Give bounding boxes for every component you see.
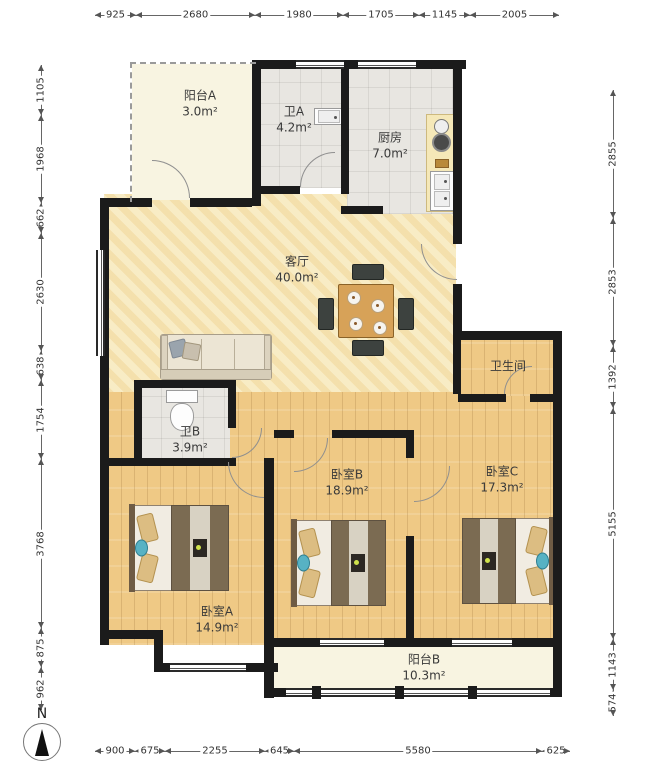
dim-left: 638 [34,351,48,380]
wall-segment [274,638,320,647]
room-name: 客厅 [275,254,318,270]
dim-left: 875 [34,628,48,667]
dim-bottom: 900 [95,744,135,758]
dim-bottom: 625 [542,744,570,758]
wall-segment [228,380,236,428]
wall-segment [458,394,506,402]
dim-right: 2855 [606,90,620,218]
dim-bottom: 2255 [165,744,265,758]
living-room-floor [104,194,456,392]
dim-top: 1980 [255,8,343,22]
wall-segment [384,638,452,647]
room-label-bath-a: 卫A4.2m² [276,104,312,135]
room-label-balcony-b: 阳台B10.3m² [402,652,445,683]
wall-segment [258,186,300,194]
balcony-window-band [286,688,550,697]
dining-chair [352,264,384,280]
wall-segment [453,331,562,340]
window [170,663,246,672]
dim-bottom: 645 [265,744,294,758]
window [320,638,384,647]
cutting-board [435,159,449,168]
dim-top: 1145 [419,8,470,22]
dim-right: 2853 [606,218,620,346]
room-name: 卫A [276,104,312,120]
dim-bottom: 5580 [294,744,542,758]
wall-segment [453,331,461,394]
room-area: 10.3m² [402,668,445,684]
room-area: 4.2m² [276,120,312,136]
wall-segment [274,430,294,438]
room-name: 卧室A [195,604,238,620]
room-area: 3.0m² [182,104,218,120]
dining-chair [318,298,334,330]
room-label-bedroom-b: 卧室B18.9m² [325,467,368,498]
window [358,60,416,69]
wall-segment [512,638,556,647]
wall-segment [134,380,142,466]
wall-segment [252,60,261,206]
window [96,250,105,356]
dim-top: 2005 [470,8,559,22]
balcony-a-dashed-edge [130,62,132,202]
plate [347,291,361,305]
bed-c [462,518,554,604]
compass-circle [23,723,61,761]
room-label-living: 客厅40.0m² [275,254,318,285]
room-area: 18.9m² [325,483,368,499]
window [296,60,344,69]
wall-segment [553,331,562,691]
room-name: 卧室C [480,464,523,480]
wall-segment [341,206,383,214]
dim-top: 1705 [343,8,419,22]
room-name: 卫生间 [490,359,526,375]
wall-segment [453,60,462,244]
window-post [312,686,321,699]
dining-chair [352,340,384,356]
sofa [160,334,272,380]
plate [373,321,387,335]
room-label-bedroom-c: 卧室C17.3m² [480,464,523,495]
dim-right: 1392 [606,346,620,408]
room-name: 厨房 [372,130,408,146]
dim-left: 3768 [34,459,48,628]
wall-segment [134,458,236,466]
room-label-bathroom: 卫生间 [490,359,526,375]
wall-segment [332,430,414,438]
window-post [395,686,404,699]
room-name: 卫B [172,424,208,440]
wall-segment [406,536,414,646]
room-label-balcony-a: 阳台A3.0m² [182,88,218,119]
window [452,638,512,647]
dim-right: 5155 [606,408,620,639]
wall-segment [530,394,561,402]
wall-segment [264,458,274,698]
floor-plan: 阳台A3.0m² 卫A4.2m² 厨房7.0m² 客厅40.0m² 卫生间 卫B… [0,0,662,769]
kitchen-basin [432,133,451,152]
room-label-kitchen: 厨房7.0m² [372,130,408,161]
bath-a-sink [314,108,344,125]
room-area: 14.9m² [195,620,238,636]
room-area: 40.0m² [275,270,318,286]
wall-segment [134,380,236,388]
room-area: 3.9m² [172,440,208,456]
dim-bottom: 675 [135,744,165,758]
dim-left: 2630 [34,233,48,351]
dim-right: 574 [606,690,620,716]
room-name: 阳台B [402,652,445,668]
room-name: 阳台A [182,88,218,104]
bed-b [292,520,386,606]
kitchen-counter [426,114,454,212]
dim-top: 925 [95,8,136,22]
dining-chair [398,298,414,330]
window-post [468,686,477,699]
wall-segment [341,60,349,194]
room-name: 卧室B [325,467,368,483]
bed-a [130,505,229,591]
dining-table [338,284,394,338]
wall-segment [190,198,252,207]
dim-right: 1143 [606,639,620,690]
dim-left: 662 [34,203,48,233]
room-area: 7.0m² [372,146,408,162]
dim-left: 1968 [34,115,48,203]
toilet [166,390,198,403]
balcony-a-floor [132,64,252,200]
plate [371,299,385,313]
dim-top: 2680 [136,8,255,22]
dim-left: 1754 [34,380,48,459]
wall-segment [406,430,414,458]
room-label-bath-b: 卫B3.9m² [172,424,208,455]
dim-left: 1105 [34,65,48,115]
north-compass: N [20,706,64,761]
balcony-a-dashed-edge [130,62,256,64]
plate [349,317,363,331]
faucet-icon [434,119,449,134]
kitchen-sink [430,171,454,211]
wall-segment [104,458,134,466]
north-label: N [20,706,64,722]
north-arrow-icon [35,729,49,756]
room-label-bedroom-a: 卧室A14.9m² [195,604,238,635]
room-area: 17.3m² [480,480,523,496]
dim-left: 962 [34,667,48,710]
